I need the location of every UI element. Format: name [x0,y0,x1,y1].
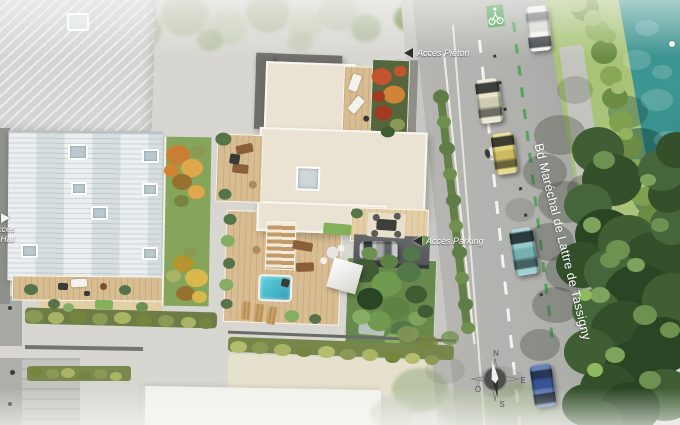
vegetation [593,151,615,169]
vegetation [223,257,235,268]
vegetation [25,310,43,323]
vegetation [92,313,108,325]
compass-south-letter: S [499,400,504,409]
bottom-fade [0,388,680,425]
vegetation [184,247,197,258]
vegetation [443,168,457,180]
vegetation [70,311,87,324]
vegetation [78,371,91,380]
vegetation [190,145,206,158]
parking-access-label: Accès Parking [413,236,484,246]
vegetation [63,303,74,312]
vegetation [181,317,196,328]
vegetation [119,285,131,295]
autumn-bush [371,67,392,85]
chair [393,212,400,219]
vegetation [660,322,680,338]
autumn-bush [185,269,208,287]
vegetation [361,246,377,260]
vegetation [318,346,335,358]
parking-access-text: Accès Parking [426,236,484,246]
vegetation [605,347,625,363]
autumn-bush [164,164,179,177]
tree-shadow [557,76,593,104]
vegetation [136,302,148,312]
vegetation [158,315,174,327]
skylight [142,149,159,163]
skylight [68,144,88,160]
skylight [296,166,321,191]
bench [296,262,314,272]
vegetation [433,90,449,104]
hall-access-text-line2: Hall [0,234,15,244]
autumn-bush [371,90,384,101]
hall-access-label: Accès Hall [0,224,15,244]
vegetation [29,367,43,377]
pedestrian-access-label: Accès Piéton [404,48,470,58]
vegetation [223,213,236,224]
vegetation [633,305,657,325]
vegetation [48,312,64,324]
vegetation [397,326,419,342]
chair [100,283,107,290]
vegetation [230,341,247,353]
dining-table [376,218,397,230]
vegetation [619,128,633,140]
vegetation [252,342,268,354]
roof-vent [8,306,12,310]
vegetation [385,352,400,363]
vegetation [606,240,630,260]
left-arrow-icon [413,236,422,246]
sofa [58,282,68,290]
vegetation [296,346,312,357]
roof-vent [10,370,15,375]
vegetation [439,142,455,155]
aerial-site-plan: Accès Piéton Accès Parking Accès Hall Bd… [0,0,680,425]
vegetation [48,299,60,309]
vegetation [274,344,291,356]
water-glint [652,65,672,79]
vegetation [136,314,152,326]
bench [232,163,249,174]
vegetation [640,174,656,186]
skylight [142,183,158,196]
lawn-patch [323,222,352,235]
autumn-bush [188,185,205,199]
vegetation [218,188,231,199]
chair [371,229,378,236]
vegetation [441,331,459,345]
vegetation [110,372,122,381]
vegetation [174,195,189,207]
vegetation [651,218,669,232]
top-fade [0,0,680,58]
chair [320,257,327,264]
pedestrian-access-text: Accès Piéton [417,48,470,58]
chair [372,213,379,220]
rug [95,299,113,309]
compass-west-letter: O [475,385,481,394]
water-glint [641,89,673,111]
vegetation [452,246,467,259]
vegetation [352,309,371,325]
skylight [21,244,38,258]
vegetation [611,82,625,94]
autumn-bush [192,291,207,303]
chair [394,230,401,237]
vegetation [461,322,475,334]
vegetation [417,304,433,318]
vegetation [362,349,378,361]
autumn-bush [393,65,406,76]
skylight [142,247,158,260]
vegetation [405,353,420,364]
vegetation [627,258,645,272]
vegetation [284,310,299,323]
vegetation [381,126,395,137]
vegetation [215,132,231,146]
vegetation [166,270,181,282]
vegetation [455,272,469,284]
firepit [229,153,241,165]
vegetation [458,298,473,311]
sofa [71,279,87,288]
hall-access-text-line1: Accès [0,224,15,234]
skylight [91,206,108,220]
vegetation [437,116,451,128]
sun-lounger [253,303,264,322]
car-parked-cream [474,78,503,125]
tree-shadow [505,198,535,222]
compass-east-letter: E [520,376,525,385]
vegetation [583,217,601,233]
right-arrow-icon [1,213,10,223]
vegetation [46,369,59,379]
vegetation [340,349,356,360]
jacuzzi-pool [258,274,293,302]
vegetation [114,312,131,324]
vegetation [425,355,439,365]
compass-north-letter: N [493,349,499,358]
vegetation [61,368,75,378]
vegetation [590,287,610,303]
compass-rose: N E S O [462,346,530,410]
vegetation [418,335,438,349]
vegetation [199,318,213,329]
vegetation [449,220,463,232]
left-arrow-icon [404,48,413,58]
chair [337,244,344,251]
skylight [71,182,87,195]
table [84,291,90,296]
vegetation [446,194,461,207]
vegetation [24,284,38,295]
vegetation [639,371,661,389]
sun-lounger [240,301,250,320]
autumn-bush [374,104,393,120]
vegetation [94,369,107,379]
